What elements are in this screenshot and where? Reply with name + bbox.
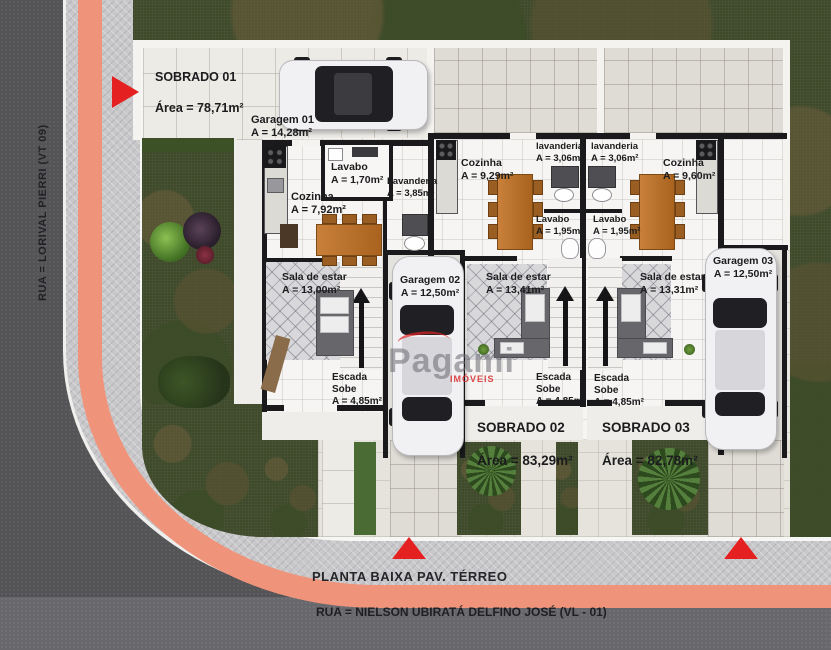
label-escada-03: Escada Sobe A = 4,85m² xyxy=(594,373,644,410)
chair xyxy=(322,256,337,266)
label-lavabo-01: Lavabo A = 1,70m² xyxy=(331,161,383,187)
dining-table-house3 xyxy=(639,174,675,250)
watermark-subtext: IMÓVEIS xyxy=(450,374,495,384)
lavabo1-sink xyxy=(328,148,343,161)
dining-table-house2 xyxy=(497,174,533,250)
label-sala-03: Sala de estar A = 13,31m² xyxy=(640,271,705,297)
washer-house2 xyxy=(551,166,579,188)
garden-plant-purple xyxy=(183,212,221,250)
label-sobrado-02: SOBRADO 02 Área = 83,29m² xyxy=(477,404,573,486)
label-cozinha-02: Cozinha A = 9,29m² xyxy=(461,157,513,183)
plan-caption: PLANTA BAIXA PAV. TÉRREO xyxy=(312,569,507,585)
tank-house3 xyxy=(592,188,612,202)
unit-name: SOBRADO 01 xyxy=(155,70,244,85)
wall-garage2-top xyxy=(383,250,465,255)
label-escada-02: Escada Sobe A = 4,85m² xyxy=(536,372,586,409)
toilet-house2 xyxy=(561,238,579,259)
sofa-cushion xyxy=(621,294,641,322)
chair xyxy=(675,224,685,239)
label-escada-01: Escada Sobe A = 4,85m² xyxy=(332,372,382,409)
wall-top-houses23 xyxy=(430,133,787,139)
car-glass xyxy=(402,397,452,421)
label-garagem-01: Garagem 01 A = 14,28m² xyxy=(251,114,314,141)
label-lavanderia-02: lavanderia A = 3,06m² xyxy=(536,141,583,164)
stair-arrow-house1 xyxy=(352,288,370,303)
bottom-street-name: RUA = NIELSON UBIRATÁ DELFINO JOSÉ (VL -… xyxy=(316,605,607,620)
front-porch-sobrado-01 xyxy=(262,412,385,440)
unit-area: Área = 78,71m² xyxy=(155,101,244,116)
potted-plant-sala3 xyxy=(684,344,695,355)
sofa-cushion xyxy=(320,316,349,333)
unit-name: SOBRADO 02 xyxy=(477,420,573,436)
wall-lavabo3-partition xyxy=(586,209,622,213)
left-street-name: RUA = LORIVAL PIERRI (VT 09) xyxy=(37,96,63,301)
front-hedge-sobrado-01 xyxy=(354,442,376,535)
label-lavabo-02: Lavabo A = 1,95m² xyxy=(536,214,583,237)
label-lavabo-03: Lavabo A = 1,95m² xyxy=(593,214,640,237)
kitchen1-stove-icon xyxy=(264,146,286,168)
car-glass xyxy=(713,298,767,328)
unit-name: SOBRADO 03 xyxy=(602,420,698,436)
label-lavanderia-03: lavanderia A = 3,06m² xyxy=(591,141,638,164)
car-roof xyxy=(715,330,765,390)
street-arrow-left-icon xyxy=(112,76,139,108)
tank-house2 xyxy=(554,188,574,202)
stair-arrow-shaft-house3 xyxy=(603,300,608,366)
backyard-patio-sobrado-03 xyxy=(604,47,783,133)
chair xyxy=(533,180,543,195)
garden-hedge-row xyxy=(142,139,234,152)
sofa-cushion xyxy=(525,294,545,322)
sofa-cushion xyxy=(320,297,349,314)
chair xyxy=(630,180,640,195)
sofa-cushion xyxy=(643,342,667,354)
car-roof xyxy=(334,73,372,115)
stair-arrow-shaft-house2 xyxy=(563,300,568,366)
tank-house1 xyxy=(404,236,425,251)
label-garagem-02: Garagem 02 A = 12,50m² xyxy=(400,274,460,300)
label-cozinha-01: Cozinha A = 7,92m² xyxy=(291,191,346,218)
kitchen1-sink xyxy=(267,178,284,193)
kitchen2-stove-icon xyxy=(436,140,456,160)
window-house3-rear xyxy=(630,133,656,139)
grass-top-strip xyxy=(133,0,831,42)
entrance-arrow-sobrado-02-icon xyxy=(392,537,426,559)
backyard-patio-sobrado-02 xyxy=(434,47,597,133)
front-grass-left xyxy=(262,440,320,537)
front-walkway-sobrado-01 xyxy=(322,440,354,537)
label-garagem-03: Garagem 03 A = 12,50m² xyxy=(713,255,773,281)
label-sobrado-01: SOBRADO 01 Área = 78,71m² xyxy=(155,55,244,131)
unit-area: Área = 82,78m² xyxy=(602,453,698,469)
wall-sep-house2 xyxy=(465,256,517,261)
patio-divider-wall-1 xyxy=(427,47,434,133)
entrance-arrow-sobrado-03-icon xyxy=(724,537,758,559)
kitchen1-cabinet xyxy=(280,224,298,248)
stair-arrow-shaft-house1 xyxy=(359,302,364,368)
unit-area: Área = 83,29m² xyxy=(477,453,573,469)
wall-garage3-right xyxy=(782,245,787,458)
wall-lavabo2-partition xyxy=(544,209,580,213)
window-house2-rear xyxy=(510,133,536,139)
floor-plan-canvas: SOBRADO 01 Área = 78,71m² SOBRADO 02 Áre… xyxy=(0,0,831,650)
stair-arrow-house3 xyxy=(596,286,614,301)
chair xyxy=(675,202,685,217)
window-house1-rear xyxy=(292,140,320,146)
car-glass xyxy=(715,392,765,416)
label-lavanderia-01: Lavanderia A = 3,85m² xyxy=(387,176,437,199)
grass-right-strip xyxy=(790,0,831,537)
rear-boundary-wall xyxy=(133,40,790,48)
right-boundary-wall xyxy=(783,47,790,250)
label-cozinha-03: Cozinha A = 9,60m² xyxy=(663,157,715,183)
lavabo1-counter xyxy=(352,147,378,157)
stair-arrow-house2 xyxy=(556,286,574,301)
chair xyxy=(488,202,498,217)
chair xyxy=(342,256,357,266)
wall-front-house1-a xyxy=(262,405,284,411)
chair xyxy=(488,224,498,239)
garden-plant-red xyxy=(196,246,214,264)
toilet-house3 xyxy=(588,238,606,259)
chair xyxy=(362,214,377,224)
label-sala-02: Sala de estar A = 13,41m² xyxy=(486,271,551,297)
washer-house3 xyxy=(588,166,616,188)
patio-divider-wall-2 xyxy=(597,47,604,133)
garden-grass-tufts xyxy=(158,356,230,408)
label-sobrado-03: SOBRADO 03 Área = 82,78m² xyxy=(602,404,698,486)
label-sala-01: Sala de estar A = 13,00m² xyxy=(282,271,347,297)
dining-table-house1 xyxy=(316,224,382,256)
wall-sep-house3 xyxy=(620,256,672,261)
chair xyxy=(362,256,377,266)
washer-house1 xyxy=(402,214,428,236)
